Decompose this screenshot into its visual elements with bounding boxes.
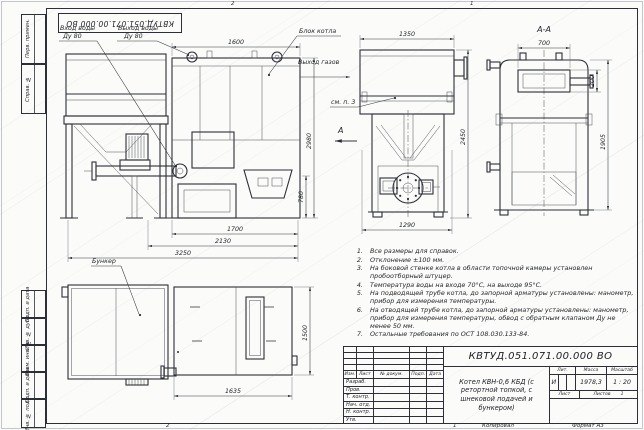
col-list: Лист: [357, 371, 374, 378]
dimensions-front-view: 1350 1290 2450: [360, 31, 472, 234]
sheets-cell: Листов 1: [580, 391, 637, 398]
dim-780: 780: [298, 191, 305, 203]
section-arrow-label: А: [337, 126, 343, 135]
role-tkontr: Т. контр.: [344, 394, 374, 401]
note-text: Отклонение ±100 мм.: [370, 256, 444, 264]
callouts-front-view: Выход газов см. п. 3 А: [298, 59, 396, 141]
water-inlet-label: Вход воды: [60, 25, 95, 32]
col-docnum: № докум.: [374, 371, 411, 378]
sheet-label: Лист: [550, 391, 580, 398]
view-front: [360, 50, 467, 218]
role-utv: Утв.: [344, 417, 374, 424]
note-item: Температура воды на входе 70°С, на выход…: [365, 281, 638, 289]
dim-1700: 1700: [227, 226, 243, 233]
dimensions-side-view: 1600 2980 780 1700 2130 3250: [68, 39, 318, 262]
col-data: Дата: [427, 371, 443, 378]
drawing-sheet: Перв. примен. Справ. № Подп. и дата Инв.…: [0, 0, 644, 430]
role-razrab: Разраб.: [344, 379, 374, 386]
notes-block: Все размеры для справок. Отклонение ±100…: [352, 247, 638, 339]
section-view-title: А-А: [536, 25, 551, 34]
view-plan: [62, 285, 297, 385]
dimensions-section-view: 700 200 1905: [518, 40, 612, 210]
dim-2980: 2980: [306, 133, 313, 149]
note-text: На отводящей трубе котла, до запорной ар…: [370, 306, 629, 330]
col-podp: Подп.: [410, 371, 427, 378]
lit-value: И: [550, 375, 559, 390]
scale-header: Масштаб: [607, 367, 637, 374]
dim-700: 700: [538, 40, 550, 47]
dim-1905: 1905: [600, 134, 607, 150]
water-inlet-dn: Ду 80: [62, 33, 82, 40]
sheet-format-label: Формат А3: [572, 423, 604, 429]
water-outlet-label: Выход воды: [118, 25, 158, 32]
role-nachotd: Нач. отд.: [344, 402, 374, 409]
dim-1350: 1350: [399, 31, 415, 38]
note-text: На боковой стенке котла в области топочн…: [370, 264, 592, 280]
see-note-3-label: см. п. 3: [331, 99, 355, 106]
role-nkontr: Н. контр.: [344, 409, 374, 416]
dim-1290: 1290: [399, 222, 415, 229]
document-number: КВТУД.051.071.00.000 ВО: [444, 347, 637, 367]
dim-2130: 2130: [215, 238, 231, 245]
note-text: На подводящей трубе котла, до запорной а…: [370, 289, 633, 305]
sheets-value: 1: [621, 392, 624, 397]
scale-value: 1 : 20: [607, 375, 637, 390]
mass-header: Масса: [576, 367, 607, 374]
note-item: Остальные требования по ОСТ 108.030.133-…: [365, 330, 638, 338]
note-item: Все размеры для справок.: [365, 247, 638, 255]
copied-by-label: Копировал: [482, 423, 514, 429]
dim-200: 200: [589, 75, 596, 87]
col-izm: Изм.: [344, 371, 357, 378]
view-section-aa: А-А: [487, 25, 594, 216]
note-text: Температура воды на входе 70°С, на выход…: [370, 281, 542, 289]
notes-list: Все размеры для справок. Отклонение ±100…: [352, 247, 638, 338]
lit-header: Лит.: [550, 367, 576, 374]
sheets-label: Листов: [593, 392, 610, 397]
view-side: [60, 51, 300, 218]
title-block: Изм. Лист № докум. Подп. Дата Разраб. Пр…: [343, 346, 638, 424]
note-item: На боковой стенке котла в области топочн…: [365, 264, 638, 280]
gas-outlet-label: Выход газов: [298, 59, 340, 66]
note-text: Остальные требования по ОСТ 108.030.133-…: [370, 330, 529, 338]
product-title: Котел КВН-0,6 КБД (с ретортной топкой, с…: [444, 367, 550, 423]
water-outlet-dn: Ду 80: [123, 33, 143, 40]
note-item: На отводящей трубе котла, до запорной ар…: [365, 306, 638, 330]
title-block-main: КВТУД.051.071.00.000 ВО Котел КВН-0,6 КБ…: [444, 347, 637, 423]
dim-1500: 1500: [302, 325, 309, 341]
dim-2450: 2450: [460, 129, 467, 145]
dim-1600: 1600: [228, 39, 244, 46]
note-item: На подводящей трубе котла, до запорной а…: [365, 289, 638, 305]
dim-3250: 3250: [175, 250, 191, 257]
boiler-block-label: Блок котла: [299, 28, 336, 35]
bunker-label: Бункер: [92, 258, 116, 265]
title-block-revision-table: Изм. Лист № докум. Подп. Дата Разраб. Пр…: [344, 347, 444, 423]
mass-value: 1978,3: [576, 375, 607, 390]
role-prov: Пров.: [344, 387, 374, 394]
note-text: Все размеры для справок.: [370, 247, 459, 255]
note-item: Отклонение ±100 мм.: [365, 256, 638, 264]
dim-1635: 1635: [225, 388, 241, 395]
